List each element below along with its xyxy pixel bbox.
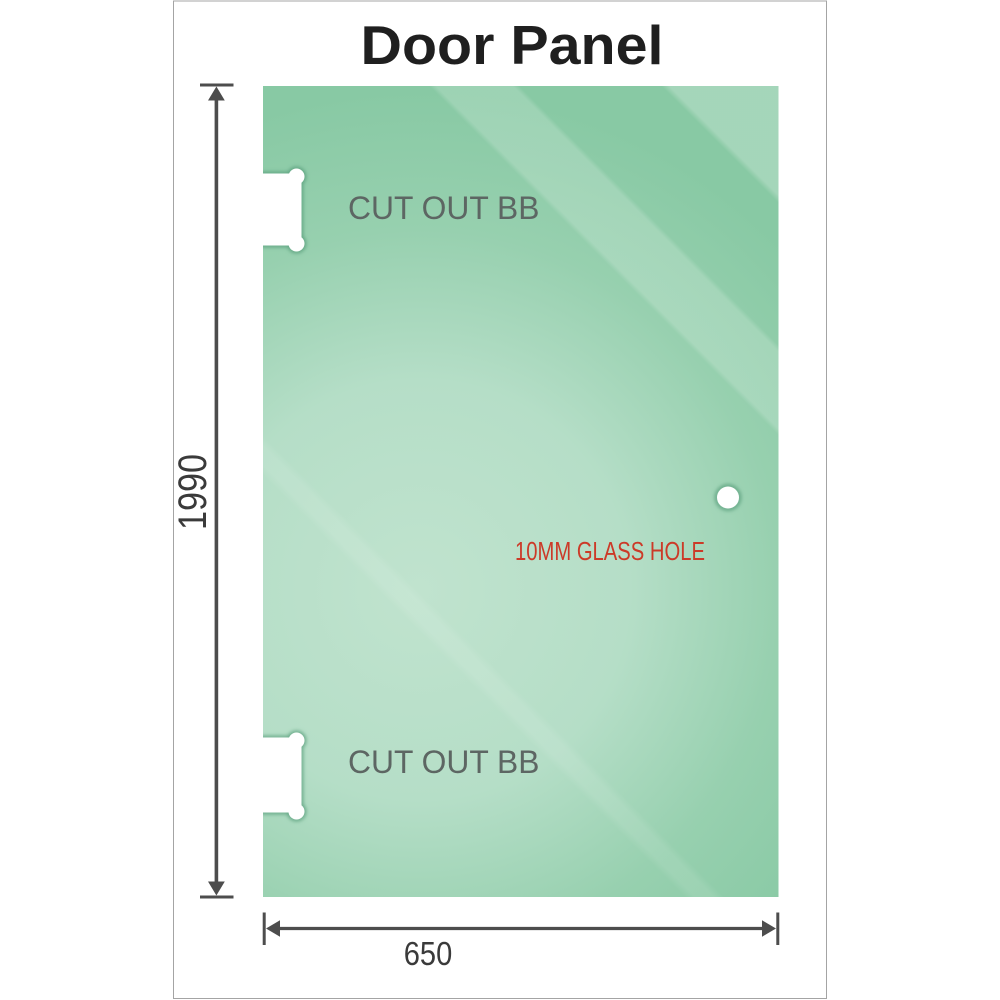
svg-text:650: 650 <box>404 935 453 972</box>
svg-text:CUT OUT BB: CUT OUT BB <box>348 744 540 780</box>
svg-text:Door Panel: Door Panel <box>361 14 664 76</box>
svg-text:CUT OUT BB: CUT OUT BB <box>348 190 540 226</box>
svg-text:1990: 1990 <box>171 454 215 530</box>
svg-text:10MM GLASS HOLE: 10MM GLASS HOLE <box>515 536 705 566</box>
